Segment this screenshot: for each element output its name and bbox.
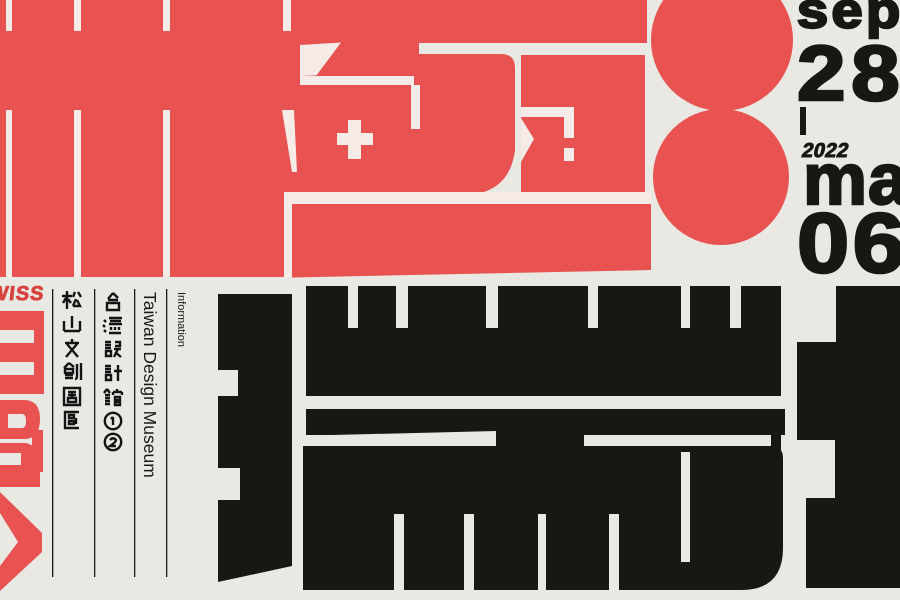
svg-text:Taiwan Design Museum: Taiwan Design Museum <box>140 292 160 478</box>
svg-text:Information: Information <box>175 292 187 347</box>
svg-text:SWISS: SWISS <box>0 283 46 305</box>
svg-text:06: 06 <box>797 196 900 290</box>
svg-text:28: 28 <box>797 29 900 117</box>
